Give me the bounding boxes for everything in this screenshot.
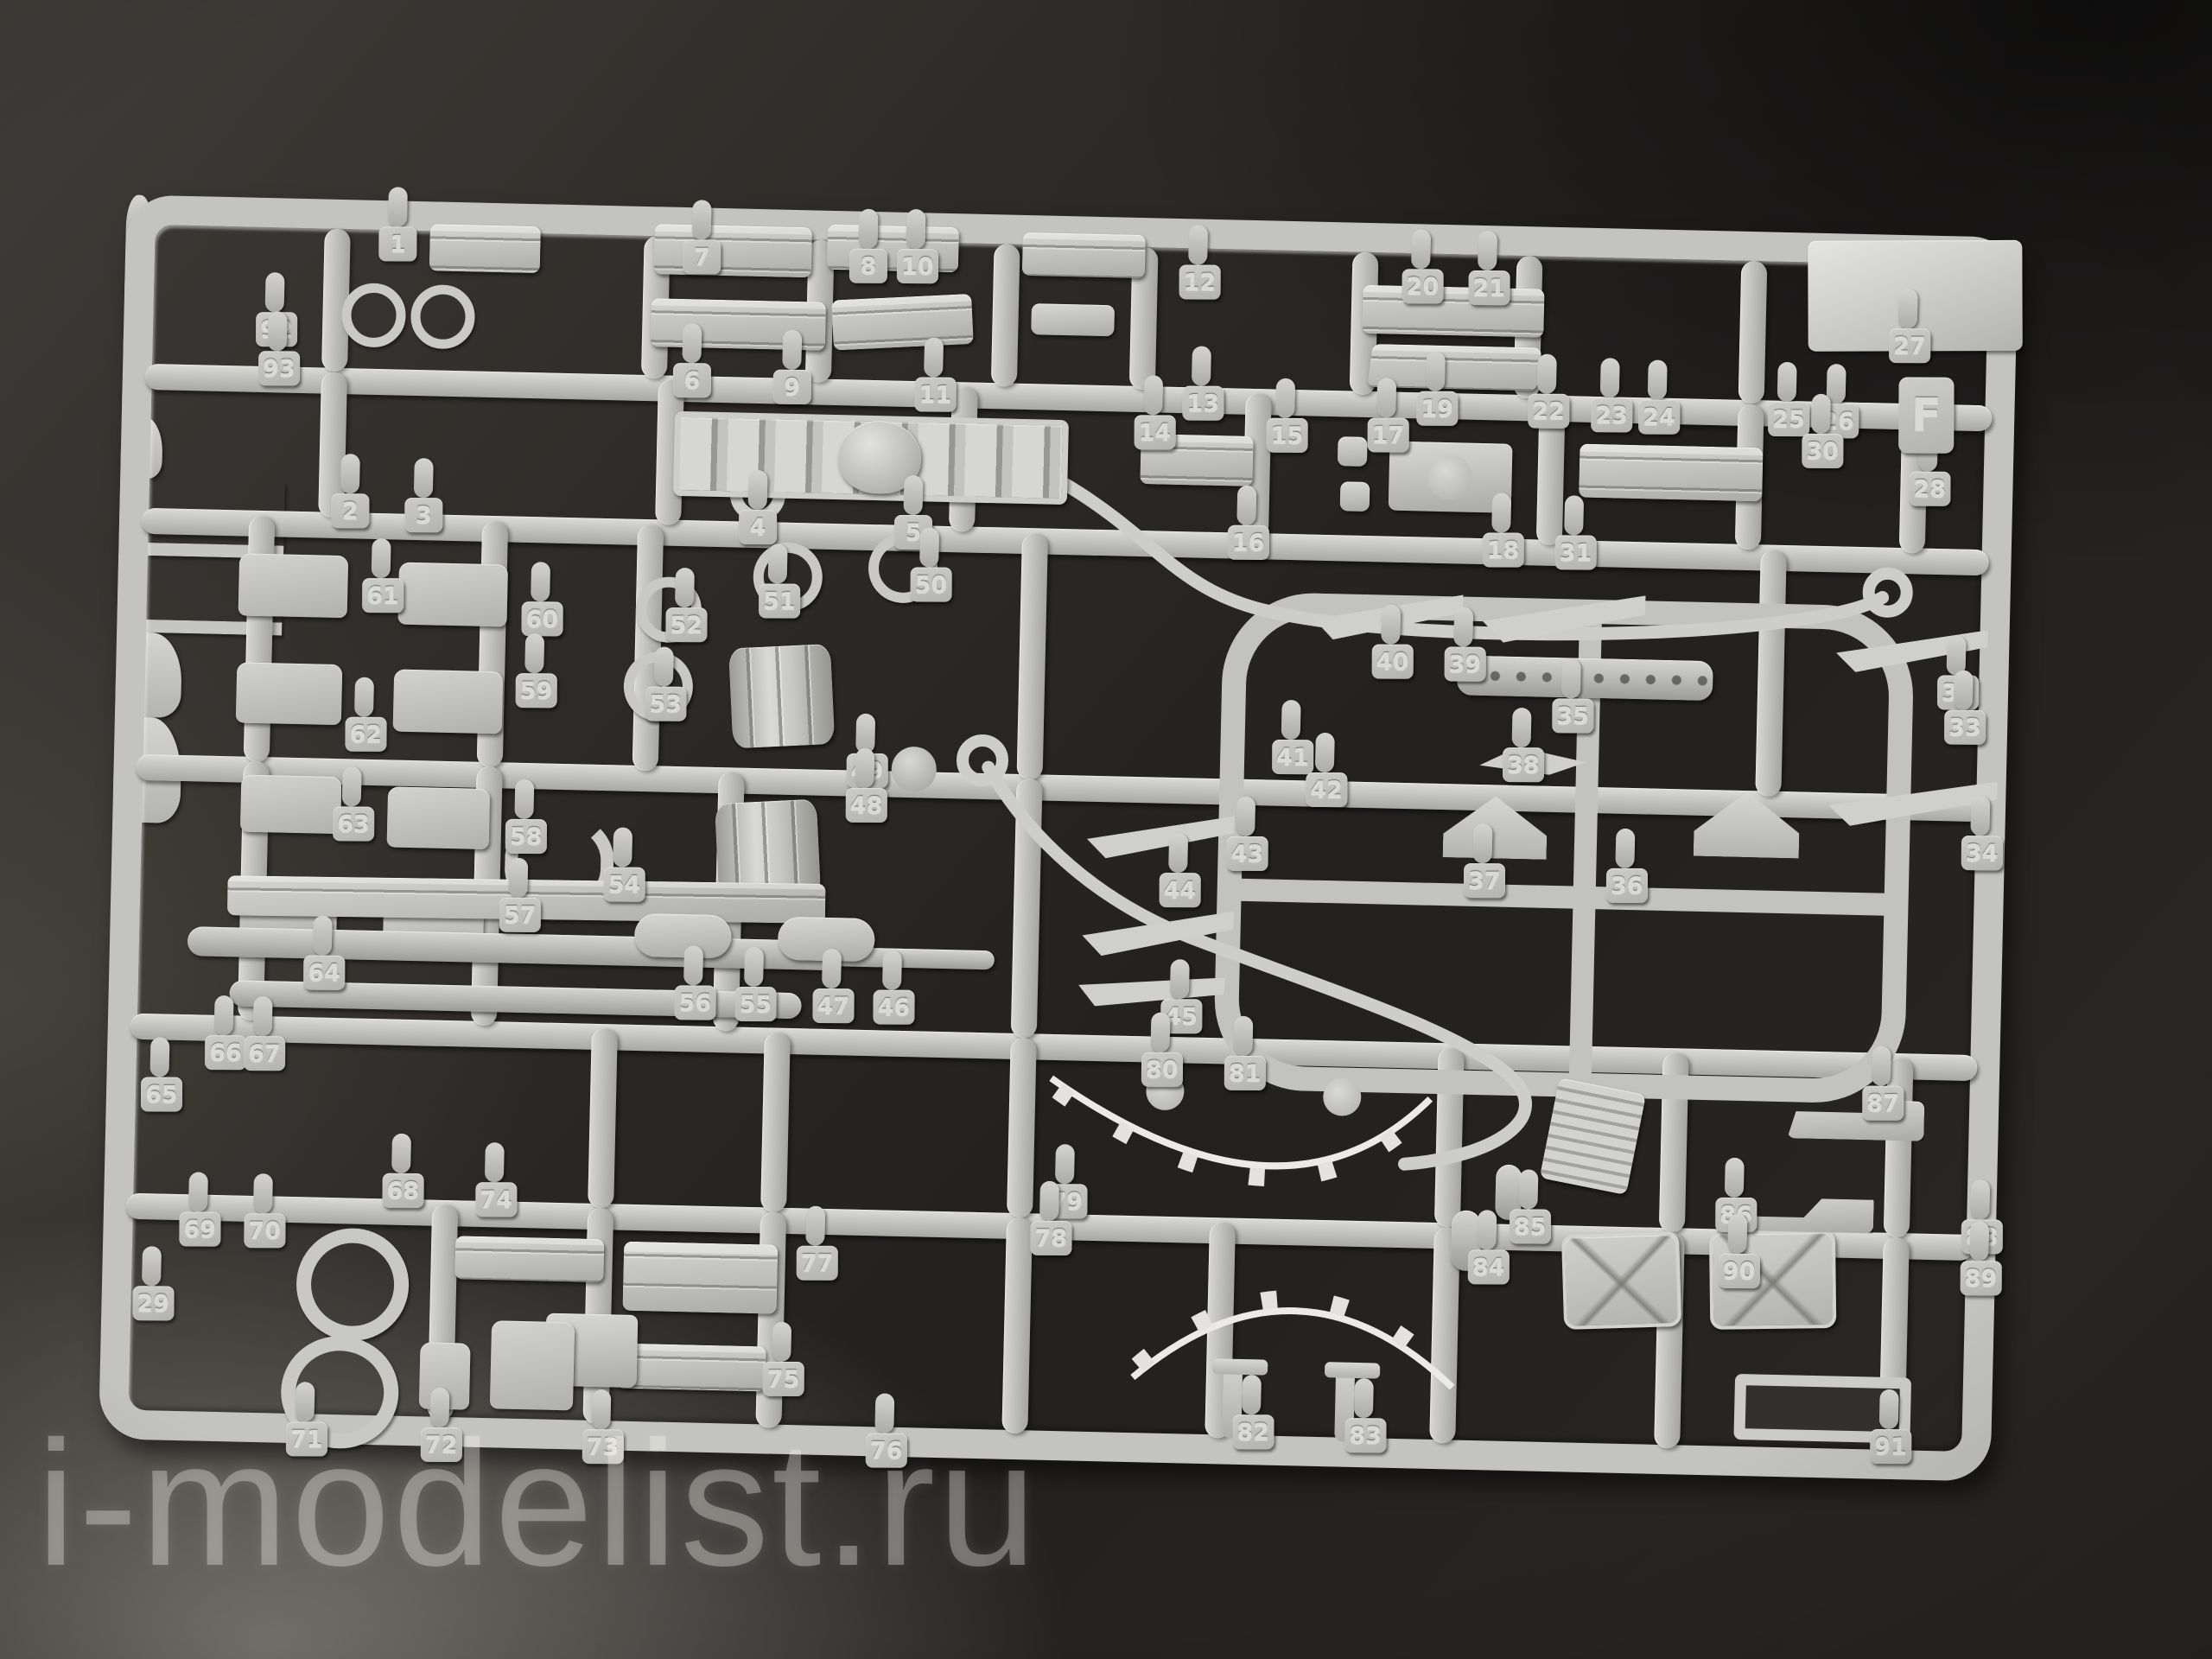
part-number-tag: 19: [1416, 391, 1458, 426]
sprue-gate-stub: [149, 1037, 169, 1077]
part-number-tag: 70: [244, 1213, 285, 1248]
part-number-tag: 53: [645, 687, 686, 721]
latch-box-part: [1340, 481, 1370, 512]
part-number-tag: 15: [1267, 418, 1308, 453]
part-number-tag: 64: [303, 956, 345, 990]
cable-eyelet-part: [963, 740, 1003, 780]
ribbed-panel-part: [1579, 444, 1763, 502]
part-number-tag: 90: [1719, 1254, 1760, 1288]
part-number-tag: 57: [499, 898, 541, 932]
sprue-gate-stub: [1426, 352, 1446, 391]
part-number-tag: 23: [1591, 397, 1632, 432]
fuel-drum-part: [728, 644, 835, 748]
part-number-tag: 78: [1030, 1221, 1071, 1255]
part-number-tag: 89: [1961, 1261, 2002, 1295]
sprue-gate-stub: [1725, 1158, 1745, 1198]
part-number-tag: 4: [739, 510, 777, 544]
sprue-gate-stub: [388, 187, 408, 226]
runner-bar: [1230, 890, 1897, 906]
sprue-gate-stub: [508, 858, 528, 898]
sprue-gate-stub: [1970, 1179, 1990, 1219]
sprue-gate-stub: [340, 454, 360, 493]
sprue-gate-stub: [822, 949, 842, 988]
fender-arc-part: [1133, 1307, 1454, 1388]
part-number-tag: 74: [475, 1182, 517, 1217]
part-number-tag: 50: [911, 567, 952, 601]
sprue-gate-stub: [1170, 959, 1190, 999]
sprue-gate-stub: [265, 272, 285, 312]
sprue-gate-stub: [1811, 394, 1831, 434]
part-number-tag: 17: [1368, 417, 1409, 452]
part-number-tag: 47: [812, 988, 854, 1023]
part-number-tag: 1: [378, 226, 416, 261]
part-number-tag: 59: [516, 673, 557, 708]
sprue-gate-stub: [855, 748, 874, 788]
part-number-tag: 68: [382, 1173, 423, 1208]
sprue-gate-stub: [1275, 378, 1295, 418]
sprue-gate-stub: [342, 766, 362, 806]
part-number-tag: 14: [1135, 415, 1176, 449]
part-number-tag: 93: [258, 351, 300, 385]
part-number-tag: 46: [873, 990, 914, 1025]
sprue-gate-stub: [313, 915, 333, 955]
ribbed-panel-part: [454, 1236, 604, 1282]
sprue-gate-stub: [1168, 833, 1188, 873]
sprue-gate-stub: [682, 323, 702, 363]
part-number-tag: 65: [141, 1077, 182, 1111]
sprue-gate-stub: [1411, 229, 1431, 269]
part-number-tag: 21: [1468, 270, 1510, 305]
part-number-tag: 60: [521, 601, 563, 636]
sprue-gate-stub: [1954, 670, 1974, 709]
ribbed-panel-part: [831, 294, 974, 351]
sprue-gate-stub: [1453, 607, 1473, 646]
latch-box-part: [1338, 436, 1368, 467]
sprue-gate-stub: [1242, 1375, 1262, 1414]
sprue-gate-stub: [1615, 829, 1635, 868]
part-number-tag: 8: [849, 249, 887, 283]
part-number-tag: 56: [674, 985, 715, 1020]
part-number-tag: 30: [1802, 434, 1843, 468]
ribbed-panel-part: [827, 225, 959, 272]
mount-bracket-part: [490, 1320, 575, 1410]
part-number-tag: 83: [1344, 1418, 1386, 1452]
sprue-gate-stub: [1777, 362, 1797, 402]
part-number-tag: 48: [846, 788, 887, 823]
sprue-gate-stub: [514, 779, 534, 819]
hatch-dome: [1427, 454, 1472, 500]
sprue-gate-stub: [1233, 1016, 1253, 1056]
sprue-gate-stub: [768, 543, 788, 583]
sprue-gate-stub: [805, 1205, 825, 1245]
sprue-gate-stub: [1512, 708, 1532, 747]
sprue-gate-stub: [1518, 1169, 1538, 1209]
part-number-tag: 81: [1224, 1056, 1266, 1090]
part-number-tag: 54: [604, 867, 645, 901]
part-number-tag: 75: [763, 1362, 804, 1396]
part-number-tag: 40: [1372, 645, 1414, 679]
mount-bracket-part: [397, 563, 508, 627]
ribbed-panel-part: [622, 1242, 778, 1314]
part-number-tag: 10: [897, 249, 938, 283]
part-number-tag: 51: [759, 583, 800, 618]
part-number-tag: 25: [1768, 402, 1809, 436]
part-number-tag: 58: [505, 819, 547, 854]
part-number-tag: 85: [1510, 1209, 1551, 1243]
sprue-gate-stub: [1561, 658, 1581, 698]
sprue-gate-stub: [1192, 346, 1211, 385]
ring-shape: [410, 284, 476, 350]
sprue-gate-stub: [1236, 486, 1256, 525]
part-number-tag: 20: [1402, 269, 1443, 303]
part-number-tag: 9: [773, 370, 811, 404]
part-number-tag: 66: [205, 1035, 246, 1070]
arc-tab-part: [1137, 1295, 1450, 1375]
mount-bracket-part: [240, 775, 341, 835]
part-number-tag: 31: [1555, 535, 1597, 569]
part-number-tag: 35: [1552, 698, 1593, 733]
sprue-gate-stub: [882, 950, 902, 989]
part-number-tag: 55: [734, 987, 776, 1021]
bracket-part: [1031, 303, 1115, 336]
part-number-tag: 38: [1503, 747, 1544, 782]
sprue-gate-stub: [613, 827, 632, 867]
part-number-tag: 84: [1468, 1249, 1510, 1284]
part-number-tag: 87: [1862, 1086, 1904, 1121]
ribbed-panel-part: [1362, 285, 1544, 338]
sprue-letter-tab: F: [1898, 377, 1954, 453]
jerry-can-part: [1561, 1231, 1681, 1330]
sprue-gate-stub: [782, 330, 802, 370]
sprue-gate-stub: [1969, 1221, 1989, 1261]
mount-bracket-part: [393, 670, 504, 734]
sprue-gate-stub: [1281, 700, 1301, 740]
part-number-tag: 33: [1944, 710, 1986, 745]
part-number-tag: 43: [1227, 836, 1268, 871]
sprue-gate-stub: [391, 1134, 411, 1173]
sprue-gate-stub: [1055, 1144, 1075, 1184]
ribbed-panel-part: [1022, 232, 1146, 278]
sprue-gate-stub: [372, 538, 391, 578]
sprue-gate-stub: [1537, 353, 1557, 393]
sprue-gate-stub: [692, 200, 712, 239]
part-number-tag: 29: [132, 1286, 174, 1320]
linkage-part: [634, 913, 732, 959]
sprue-gate-stub: [919, 527, 939, 567]
sprue-gate-stub: [1879, 1389, 1899, 1429]
sprue-gate-stub: [354, 677, 374, 716]
tow-cable-part: [980, 767, 1533, 1166]
sprue-gate-stub: [906, 209, 925, 249]
ribbed-panel-part: [429, 224, 541, 273]
sprue-gate-stub: [1898, 289, 1918, 328]
sprue-gate-stub: [1381, 604, 1401, 644]
sprue-gate-stub: [858, 209, 878, 249]
ribbed-panel-part: [654, 224, 812, 277]
sprue-gate-stub: [654, 646, 674, 686]
part-number-tag: 37: [1464, 863, 1505, 898]
sprue-gate-stub: [1143, 375, 1163, 415]
ribbed-panel-part: [616, 1344, 766, 1392]
sprue-gate-stub: [1150, 1012, 1170, 1052]
part-number-tag: 44: [1160, 873, 1201, 907]
photo-stage: 1781012202127929369111319222324252614151…: [0, 0, 2212, 1659]
part-number-tag: 91: [1870, 1429, 1911, 1464]
sprue-gate-stub: [253, 996, 273, 1036]
sprue-gate-stub: [1039, 1181, 1059, 1221]
sprue-gate-stub: [414, 458, 434, 498]
sprue-gate-stub: [675, 568, 695, 607]
sprue-gate-stub: [1478, 231, 1497, 270]
sprue-gate-stub: [903, 475, 923, 515]
sprue-gate-stub: [1188, 225, 1208, 264]
sprue-gate-stub: [1472, 823, 1492, 863]
sprue-gate-stub: [744, 947, 764, 987]
sprue-gate-stub: [1236, 797, 1255, 836]
part-number-tag: 27: [1889, 328, 1930, 363]
part-number-tag: 80: [1141, 1052, 1183, 1087]
part-number-tag: 7: [683, 239, 721, 274]
part-number-tag: 82: [1232, 1414, 1274, 1449]
part-number-tag: 67: [244, 1036, 285, 1071]
part-number-tag: 61: [362, 578, 404, 613]
arc-tab-part: [1055, 1090, 1425, 1181]
sprue-gate-stub: [531, 562, 550, 601]
part-number-tag: 18: [1483, 532, 1524, 567]
sprue-gate-stub: [1376, 378, 1396, 417]
part-number-tag: 52: [665, 607, 707, 642]
part-number-tag: 69: [179, 1211, 220, 1246]
sprue-gate-stub: [1648, 359, 1668, 399]
part-number-tag: 28: [1909, 472, 1950, 506]
sprue-gate-stub: [1564, 495, 1584, 535]
sprue-frame: 1781012202127929369111319222324252614151…: [99, 194, 2018, 1481]
part-number-tag: 11: [915, 378, 957, 412]
part-number-tag: 12: [1179, 264, 1221, 299]
sprue-gate-stub: [485, 1142, 505, 1182]
part-number-tag: 77: [797, 1246, 838, 1281]
part-number-tag: 2: [331, 493, 369, 528]
sprue-gate-stub: [924, 337, 944, 377]
part-number-tag: 41: [1272, 740, 1313, 774]
mount-bracket-part: [387, 786, 491, 849]
sprue-gate-stub: [1354, 1378, 1374, 1418]
sprue-gate-stub: [1315, 733, 1335, 772]
ring-shape: [341, 283, 407, 348]
sprue-gate-stub: [253, 1173, 273, 1213]
watermark: i-modelist.ru: [36, 1402, 1039, 1606]
sprue-gate-stub: [188, 1172, 208, 1211]
sprue-gate-stub: [748, 470, 768, 510]
part-number-tag: 16: [1228, 525, 1269, 560]
binocular-part: [341, 283, 476, 349]
part-number-tag: 62: [345, 717, 386, 752]
perforated-tube-part: [1457, 655, 1713, 701]
sprue-gate-stub: [1491, 493, 1511, 532]
part-number-tag: 39: [1445, 646, 1486, 681]
mount-bracket-part: [238, 553, 349, 618]
part-number-tag: 36: [1606, 868, 1648, 903]
sprue-gate-stub: [214, 995, 234, 1035]
mount-bracket-part: [236, 662, 343, 725]
sprue-gate-stub: [524, 633, 544, 673]
sprue-gate-stub: [1970, 796, 1990, 836]
part-number-tag: 24: [1638, 400, 1680, 435]
sprue-gate-stub: [1727, 1214, 1747, 1254]
part-number-tag: 63: [333, 806, 374, 841]
sprue-gate-stub: [142, 1246, 162, 1286]
sprue-gate-stub: [268, 311, 288, 351]
sprue-gate-stub: [683, 945, 703, 985]
sprue-gate-stub: [1872, 1046, 1891, 1085]
sprue-gate-stub: [1600, 358, 1620, 397]
sprue-gate-stub: [772, 1322, 791, 1362]
part-number-tag: 22: [1528, 394, 1569, 429]
part-number-tag: 3: [404, 498, 442, 532]
cable-eyelet-part: [1868, 573, 1907, 612]
part-number-tag: 42: [1306, 772, 1347, 807]
part-number-tag: 6: [673, 363, 711, 397]
part-number-tag: 34: [1961, 836, 2003, 870]
sprue-gate-stub: [1477, 1210, 1497, 1249]
part-number-tag: 13: [1182, 386, 1224, 421]
